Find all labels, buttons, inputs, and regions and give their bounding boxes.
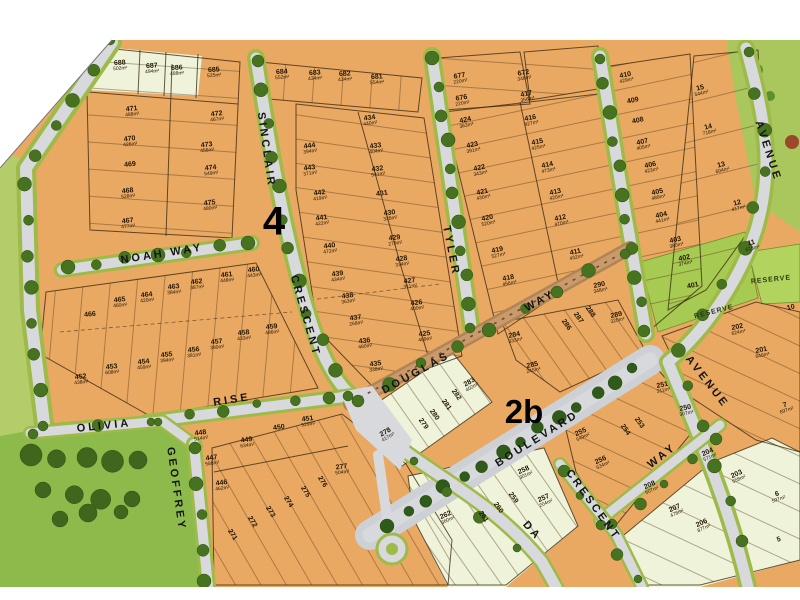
tree [102, 450, 124, 472]
tree [603, 105, 617, 119]
tree [189, 442, 201, 454]
tree [410, 457, 418, 465]
tree [634, 575, 642, 583]
tree [614, 160, 626, 172]
tree [627, 271, 641, 285]
tree [20, 444, 42, 466]
plat-map: 688502m²687494m²686488m²685525m²684552m²… [0, 0, 800, 600]
tree [129, 451, 147, 469]
tree [476, 461, 488, 473]
tree [460, 472, 470, 482]
tree [497, 445, 511, 459]
tree [272, 179, 286, 193]
tree [747, 202, 759, 214]
plat-map-graphics [0, 0, 800, 600]
tree [744, 47, 754, 57]
tree [18, 177, 32, 191]
tree [277, 215, 287, 225]
tree [717, 279, 727, 289]
tree [710, 433, 722, 445]
tree [531, 421, 543, 433]
tree [28, 348, 40, 360]
tree [61, 260, 75, 274]
tree [435, 110, 447, 122]
tree [252, 55, 264, 67]
tree [24, 215, 34, 225]
tree [516, 437, 526, 447]
tree [620, 214, 630, 224]
feature-tree [785, 135, 799, 149]
tree [726, 496, 736, 506]
tree [34, 383, 48, 397]
tree [592, 387, 604, 399]
tree [38, 421, 48, 431]
tree [151, 248, 165, 262]
tree [558, 465, 570, 477]
tree [571, 403, 581, 413]
tree [29, 150, 41, 162]
tree [380, 519, 394, 533]
roundabout-island [386, 543, 398, 555]
tree [748, 88, 760, 100]
tree [197, 574, 211, 588]
tree [552, 410, 566, 424]
tree [181, 248, 191, 258]
tree [513, 544, 521, 552]
tree [465, 323, 475, 333]
tree [185, 409, 195, 419]
tree [582, 264, 596, 278]
tree [597, 77, 609, 89]
tree [197, 544, 209, 556]
tree [688, 454, 698, 464]
tree [615, 188, 629, 202]
tree [119, 251, 131, 263]
tree [608, 376, 622, 390]
tree [124, 491, 140, 507]
tree [317, 334, 329, 346]
tree [343, 391, 353, 401]
tree [253, 400, 261, 408]
tree [114, 505, 128, 519]
tree [611, 549, 623, 561]
tree [461, 297, 475, 311]
tree [217, 405, 229, 417]
tree [551, 286, 563, 298]
tree [65, 486, 83, 504]
tree [607, 519, 617, 529]
tree [214, 239, 226, 251]
tree [736, 535, 748, 547]
tree [637, 297, 647, 307]
tree [27, 318, 37, 328]
tree [683, 381, 693, 391]
tree [266, 151, 278, 163]
tree [35, 482, 51, 498]
tree [292, 274, 306, 288]
tree [445, 164, 455, 174]
bottom-margin [0, 587, 800, 600]
tree [442, 487, 452, 497]
tree [323, 392, 335, 404]
tree [77, 448, 97, 468]
tree [446, 187, 458, 199]
tree [707, 459, 721, 473]
tree [21, 250, 33, 262]
tree [92, 420, 104, 432]
tree [620, 249, 630, 259]
tree [404, 506, 414, 516]
tree [595, 54, 605, 64]
tree [352, 395, 364, 407]
tree [91, 260, 101, 270]
top-margin [0, 0, 800, 40]
tree [282, 242, 294, 254]
tree [473, 511, 485, 523]
tree [28, 429, 38, 439]
tree [420, 495, 432, 507]
tree [52, 511, 68, 527]
tree [254, 83, 268, 97]
tree [627, 363, 637, 373]
tree [241, 236, 255, 250]
tree [79, 504, 97, 522]
tree [290, 396, 300, 406]
tree [416, 358, 426, 368]
tree [425, 51, 439, 65]
tree [66, 93, 80, 107]
tree [738, 241, 752, 255]
tree [576, 492, 584, 500]
tree [441, 133, 455, 147]
tree [301, 309, 311, 319]
tree [383, 378, 397, 392]
tree [329, 363, 343, 377]
tree [461, 269, 473, 281]
tree [189, 477, 203, 491]
tree [51, 121, 61, 131]
tree [452, 215, 466, 229]
tree [154, 418, 162, 426]
tree [760, 167, 770, 177]
tree [758, 123, 772, 137]
tree [455, 246, 465, 256]
tree [660, 480, 668, 488]
tree [697, 420, 709, 432]
tree [197, 510, 207, 520]
tree [521, 304, 531, 314]
tree [264, 119, 274, 129]
tree [24, 280, 38, 294]
tree [635, 498, 647, 510]
tree [607, 137, 617, 147]
tree [596, 520, 606, 530]
tree [697, 309, 709, 321]
tree [452, 341, 464, 353]
tree [434, 82, 444, 92]
tree [482, 323, 496, 337]
tree [48, 450, 66, 468]
tree [638, 325, 650, 337]
tree [671, 343, 685, 357]
